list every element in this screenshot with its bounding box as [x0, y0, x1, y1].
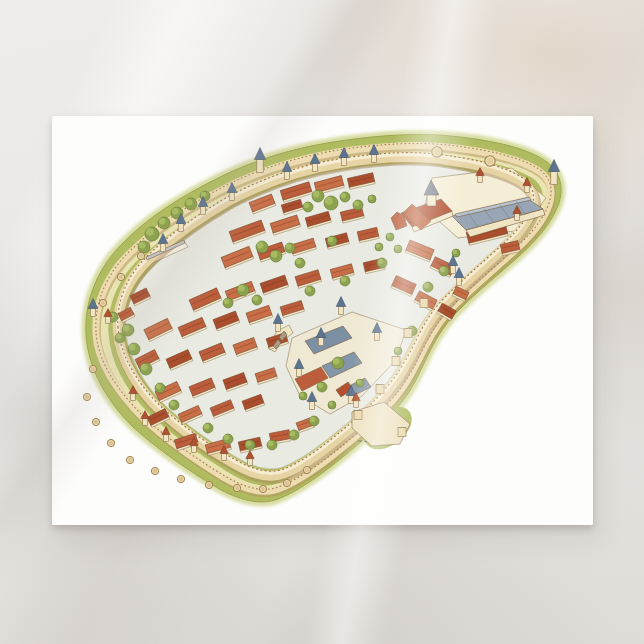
tree-highlight: [146, 228, 154, 236]
city-building: [280, 300, 304, 317]
tree-highlight: [186, 199, 193, 206]
tree-foliage: [270, 250, 282, 262]
castle-hall-d: [345, 378, 371, 397]
tree: [312, 190, 324, 202]
roof-ridge: [169, 354, 188, 363]
tower-well: [261, 487, 265, 491]
tower-body: [284, 172, 289, 180]
tower-cone: [227, 183, 237, 193]
tree: [171, 207, 183, 219]
building-roof: [269, 430, 290, 443]
roof-ridge: [121, 311, 131, 316]
building-facade: [249, 314, 273, 325]
roof-ridge: [410, 245, 431, 254]
tower-red-cone: [162, 427, 170, 442]
tree: [340, 192, 350, 202]
roof-ridge: [192, 383, 211, 391]
city-building: [147, 409, 170, 428]
tower-open-round: [92, 418, 99, 425]
hall-facade: [466, 209, 545, 237]
building-roof: [210, 400, 234, 417]
city-building: [430, 257, 455, 278]
tower-body: [131, 394, 136, 401]
tree: [328, 401, 336, 409]
tower-body: [192, 446, 197, 453]
building-roof: [229, 220, 265, 242]
tree: [285, 243, 295, 253]
tower-body: [200, 207, 205, 215]
tower-blue-cone: [227, 183, 237, 201]
tower-ring: [259, 485, 266, 492]
tower-blue-cone: [158, 234, 168, 252]
building-facade: [283, 206, 303, 215]
tree-highlight: [310, 417, 316, 423]
tower-body: [376, 385, 384, 394]
tower-body: [222, 454, 227, 461]
hall-rib: [468, 213, 478, 227]
city-building: [130, 288, 151, 306]
building-roof: [242, 394, 264, 409]
city-building: [270, 215, 300, 235]
city-building: [255, 368, 277, 385]
roof-ridge: [216, 316, 236, 324]
castle-hall-a: [305, 326, 352, 354]
hall-rib: [516, 201, 526, 215]
tower-body: [312, 164, 317, 172]
tower-well: [285, 481, 289, 485]
tree: [267, 440, 277, 450]
city-building: [363, 258, 385, 273]
tower-ring: [151, 467, 158, 474]
tower-red-cone: [220, 446, 228, 461]
roof-ridge: [181, 410, 198, 418]
bastion-round: [485, 156, 495, 166]
tree-foliage: [128, 343, 140, 355]
tree-highlight: [246, 441, 252, 447]
building-facade: [414, 299, 433, 311]
cathedral-nave: [401, 199, 452, 227]
tree-highlight: [378, 259, 384, 265]
tower-body: [398, 428, 406, 437]
roof-ridge: [360, 232, 377, 236]
roof-ridge: [228, 286, 251, 295]
tree-highlight: [453, 250, 457, 254]
roof-ridge: [283, 305, 301, 311]
city-building: [118, 307, 135, 323]
bridge-arch: [279, 331, 287, 341]
tower-ring: [177, 475, 184, 482]
tree: [394, 245, 402, 253]
tree-foliage: [138, 241, 150, 253]
roof-ridge: [350, 177, 372, 182]
building-facade: [170, 358, 193, 371]
tree-highlight: [341, 277, 347, 283]
city-building: [257, 242, 286, 262]
tree-foliage: [185, 198, 197, 210]
tree-foliage: [423, 282, 433, 292]
tree-foliage: [285, 243, 295, 253]
tower-blue-cone: [307, 392, 317, 410]
tree: [353, 200, 363, 210]
city-building: [221, 246, 254, 269]
tree: [270, 250, 282, 262]
cathedral-transept: [403, 204, 431, 230]
city-building: [466, 223, 508, 245]
tower-open-round: [283, 479, 290, 486]
tower-open-round: [259, 485, 266, 492]
building-facade: [391, 284, 412, 296]
building-roof: [135, 350, 159, 369]
roof-ridge: [456, 290, 466, 295]
city-building: [229, 220, 265, 244]
tower-blue-cone: [294, 359, 304, 377]
tower-cone: [476, 168, 484, 176]
cathedral-facade: [412, 211, 453, 232]
building-facade: [139, 357, 160, 370]
tower-open-round: [151, 467, 158, 474]
tree-foliage: [171, 207, 183, 219]
marble-surface: [0, 0, 644, 644]
building-roof: [257, 242, 285, 260]
outer-wall: [96, 143, 552, 493]
tower-ring: [303, 466, 310, 473]
building-roof: [118, 307, 134, 321]
building-roof: [325, 233, 349, 247]
tree-foliage: [256, 241, 268, 253]
roof-ridge: [133, 292, 146, 299]
building-roof: [189, 378, 215, 396]
tree: [155, 383, 165, 393]
city-building: [296, 418, 315, 433]
cathedral-apse: [391, 212, 407, 230]
roof-ridge: [241, 441, 260, 445]
tree: [439, 266, 449, 276]
building-facade: [192, 386, 216, 398]
building-facade: [327, 240, 349, 249]
tree-foliage: [289, 430, 299, 440]
tower-well: [179, 477, 183, 481]
tower-well: [119, 275, 123, 279]
building-roof: [233, 338, 257, 355]
roof-ridge: [138, 354, 155, 363]
tree: [317, 382, 327, 392]
building-facade: [342, 215, 364, 224]
building-facade: [469, 232, 509, 245]
tower-well: [101, 301, 105, 305]
tower-cone: [294, 359, 304, 369]
tree-foliage: [377, 258, 387, 268]
tower-body: [525, 186, 530, 193]
tree-highlight: [170, 401, 176, 407]
grass-halo: [86, 134, 561, 501]
outer-wall-band: [96, 145, 551, 491]
city-building: [295, 270, 322, 289]
tree-highlight: [318, 383, 324, 389]
roof-ridge: [298, 274, 318, 280]
tower-body: [450, 266, 455, 274]
tower-cone: [158, 234, 168, 244]
tree-highlight: [139, 242, 146, 249]
building-roof: [340, 207, 364, 221]
city-building: [210, 400, 235, 419]
tree-highlight: [329, 402, 333, 406]
roof-ridge: [150, 413, 165, 420]
tower-red-cone: [523, 178, 531, 193]
tree-foliage: [108, 312, 118, 322]
tree-highlight: [129, 344, 136, 351]
city-building: [330, 264, 354, 281]
hall-rib: [484, 209, 494, 223]
tower-body: [374, 333, 379, 341]
tree-foliage: [340, 192, 350, 202]
tower-open-round: [303, 466, 310, 473]
bastion-well: [434, 149, 440, 155]
tower-blue-cone: [88, 299, 98, 317]
tower-body: [90, 309, 95, 317]
tree-foliage: [324, 196, 338, 210]
building-facade: [282, 308, 304, 318]
inner-wall-highlight: [118, 155, 534, 473]
city-building: [340, 207, 364, 223]
city-building: [405, 240, 434, 262]
building-facade: [283, 190, 313, 202]
tree: [386, 233, 394, 241]
tree-highlight: [296, 259, 302, 265]
building-facade: [316, 184, 344, 195]
tree-foliage: [452, 249, 460, 257]
tower-cone: [254, 148, 265, 160]
tree: [324, 196, 338, 210]
city-building: [178, 405, 203, 424]
cathedral-spire: [424, 180, 439, 195]
building-roof: [330, 264, 354, 278]
roof-ridge: [328, 237, 346, 242]
tower-body: [456, 278, 461, 286]
city-building: [155, 381, 182, 402]
castle-hall-c: [295, 367, 328, 391]
castle-courtyard: [286, 312, 406, 414]
roof-ridge: [232, 225, 261, 236]
tree-highlight: [387, 234, 391, 238]
building-roof: [189, 288, 221, 310]
tower-well: [128, 458, 132, 462]
tower-body: [248, 459, 253, 466]
tower-square: [398, 428, 406, 437]
building-facade: [213, 407, 235, 418]
tree: [377, 258, 387, 268]
tower-open-round: [177, 475, 184, 482]
city-building: [189, 378, 216, 398]
city-building: [290, 238, 316, 256]
tree-highlight: [116, 334, 122, 340]
roof-ridge: [293, 242, 313, 248]
building-facade: [263, 283, 289, 295]
tree-foliage: [312, 190, 324, 202]
tree-highlight: [408, 327, 414, 333]
tower-cone: [310, 154, 320, 164]
roof-ridge: [260, 247, 282, 254]
tree-foliage: [252, 295, 262, 305]
tree-foliage: [223, 434, 233, 444]
tower-body: [341, 158, 346, 166]
city-building: [242, 394, 265, 411]
city-building: [135, 350, 160, 371]
tower-red-cone: [141, 411, 149, 426]
tower-cone: [352, 393, 360, 401]
tower-cone: [454, 268, 464, 278]
bastion-well: [487, 158, 493, 164]
tree-highlight: [328, 237, 334, 243]
roof-ridge: [263, 280, 285, 287]
tower-cone: [220, 446, 228, 454]
bridge-arch: [273, 339, 281, 349]
roof-ridge: [366, 263, 383, 267]
building-roof: [466, 223, 507, 243]
bastion-ring: [432, 147, 442, 157]
building-roof: [295, 270, 321, 287]
tree-highlight: [224, 299, 230, 305]
tower-open-round: [83, 393, 90, 400]
tower-cone: [246, 451, 254, 459]
tree-highlight: [354, 201, 360, 207]
tree-foliage: [309, 416, 319, 426]
roof-ridge: [213, 404, 231, 411]
roof-ridge: [442, 307, 453, 314]
building-facade: [437, 310, 453, 321]
city-building: [178, 317, 207, 338]
tower-well: [109, 441, 113, 445]
tower-cone: [129, 386, 137, 394]
tree-foliage: [267, 440, 277, 450]
tower-body: [257, 160, 263, 173]
grass-ground: [86, 134, 561, 501]
building-roof: [438, 303, 456, 319]
tower-square: [354, 411, 362, 420]
building-facade: [273, 223, 301, 235]
building-roof: [238, 437, 261, 451]
tree-foliage: [145, 227, 159, 241]
tree-foliage: [305, 286, 315, 296]
building-roof: [280, 182, 312, 200]
tree-foliage: [386, 233, 394, 241]
tower-ring: [233, 484, 240, 491]
inner-wall-shadow: [119, 160, 535, 478]
tree-highlight: [395, 246, 399, 250]
building-roof: [314, 176, 344, 193]
building-roof: [249, 194, 275, 212]
tower-open-round: [233, 484, 240, 491]
building-facade: [240, 445, 262, 453]
roof-ridge: [317, 180, 341, 186]
city-building: [223, 373, 248, 392]
tower-red-cone: [246, 451, 254, 466]
hall-courtyard: [424, 168, 546, 238]
building-facade: [202, 351, 226, 363]
building-roof: [305, 211, 331, 226]
tree: [299, 392, 307, 400]
tree-foliage: [115, 333, 125, 343]
tree-highlight: [201, 192, 207, 198]
tower-open-round: [117, 273, 124, 280]
tree-foliage: [375, 243, 383, 251]
tower-cone: [369, 145, 379, 155]
building-facade: [258, 375, 278, 384]
building-facade: [182, 325, 207, 338]
tree: [145, 227, 159, 241]
building-facade: [452, 292, 466, 301]
building-roof: [144, 318, 172, 339]
tower-body: [354, 411, 362, 420]
tower-blue-cone: [316, 328, 326, 346]
tree: [295, 258, 305, 268]
tower-open-round: [137, 252, 144, 259]
tree-foliage: [158, 217, 170, 229]
city-illustration: [52, 116, 593, 525]
tower-blue-cone: [448, 256, 458, 274]
tree-highlight: [109, 313, 115, 319]
tree-foliage: [169, 400, 179, 410]
tree-highlight: [333, 358, 340, 365]
city-building: [260, 275, 289, 295]
tree-highlight: [440, 267, 446, 273]
tower-body: [275, 324, 280, 332]
building-facade: [298, 278, 322, 288]
tree-highlight: [300, 393, 304, 397]
building-roof: [357, 227, 379, 240]
building-roof: [205, 439, 231, 454]
postcard: [52, 116, 593, 525]
city-building: [305, 211, 331, 228]
tree-highlight: [290, 431, 296, 437]
building-facade: [349, 180, 375, 189]
building-roof: [431, 257, 455, 276]
building-roof: [255, 368, 277, 383]
tree: [368, 195, 376, 203]
building-facade: [148, 327, 173, 341]
roof-ridge: [272, 434, 289, 437]
tree-highlight: [141, 364, 148, 371]
tower-cone: [176, 214, 186, 224]
city-building: [174, 433, 198, 450]
tower-well: [91, 367, 95, 371]
city-building: [205, 439, 231, 456]
tower-cone: [513, 206, 521, 214]
roof-ridge: [419, 295, 434, 303]
building-facade: [207, 446, 231, 455]
hall-rib: [500, 205, 510, 219]
tree: [305, 286, 315, 296]
lists-path: [104, 149, 548, 490]
roof-ridge: [249, 310, 269, 317]
tree-foliage: [332, 357, 344, 369]
building-facade: [365, 266, 385, 274]
city-streets: [126, 164, 524, 468]
building-roof: [199, 343, 225, 361]
building-facade: [269, 340, 289, 349]
building-roof: [266, 333, 288, 348]
tower-blue-cone: [336, 297, 346, 315]
tower-cone: [88, 299, 98, 309]
city-building: [414, 291, 437, 311]
tree: [289, 430, 299, 440]
tree: [303, 202, 313, 212]
building-facade: [193, 297, 222, 312]
tree-foliage: [223, 298, 233, 308]
roof-ridge: [273, 220, 297, 228]
tree: [252, 295, 262, 305]
tower-ring: [137, 252, 144, 259]
tree-highlight: [204, 424, 210, 430]
